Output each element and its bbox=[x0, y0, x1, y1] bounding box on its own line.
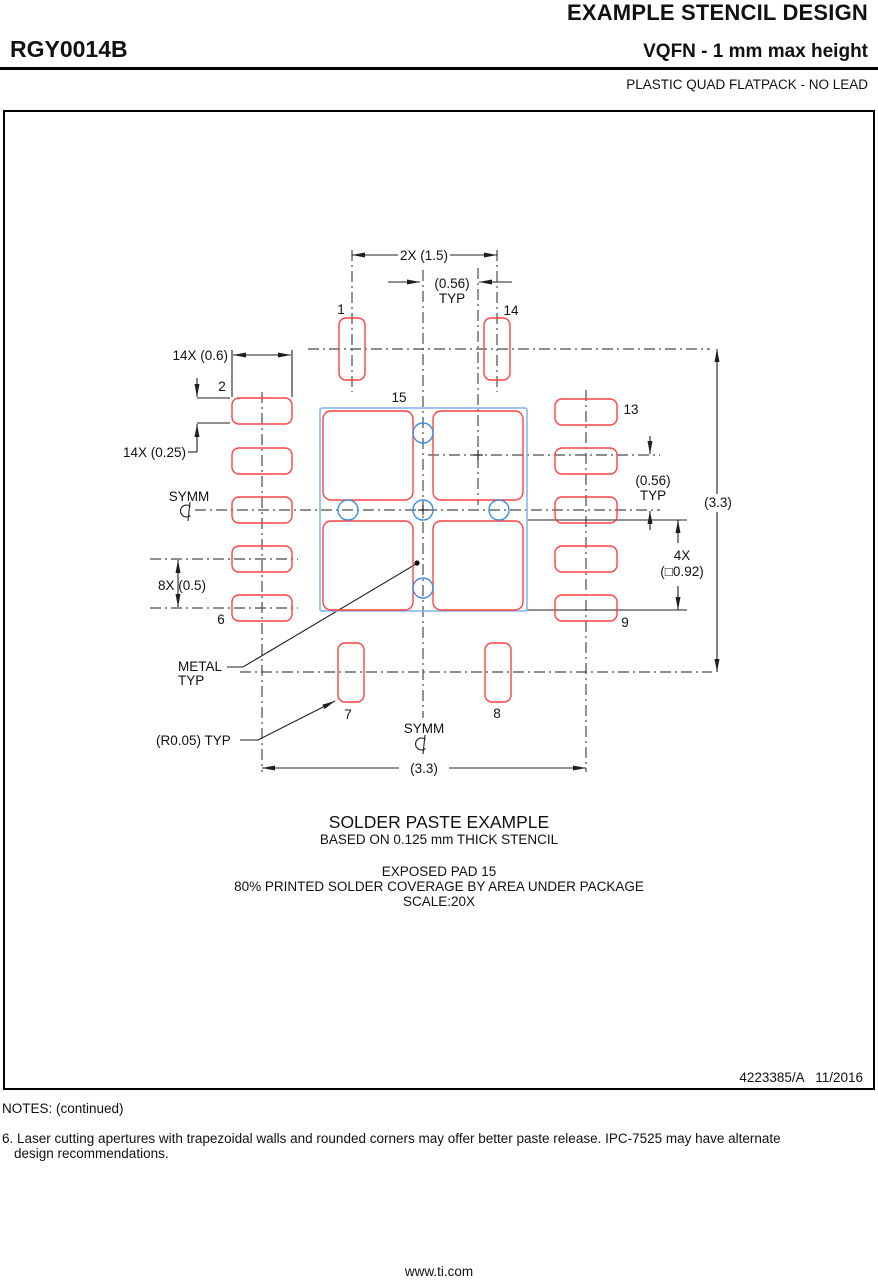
exposed-pad-segment bbox=[323, 411, 413, 500]
pin-label-14: 14 bbox=[503, 303, 519, 318]
dim-via-size: (□0.92) bbox=[660, 564, 703, 579]
dim-body-width: (3.3) bbox=[410, 761, 438, 776]
footer-url: www.ti.com bbox=[0, 1264, 878, 1279]
pin-label-13: 13 bbox=[623, 402, 638, 417]
dim-pitch-top: 2X (1.5) bbox=[400, 248, 448, 263]
radius-leader bbox=[240, 701, 335, 740]
metal-leader bbox=[227, 564, 416, 667]
pin-label-8: 8 bbox=[493, 706, 501, 721]
stencil-drawing: 2X (1.5) (0.56) TYP 14X (0.6) 14X (0.25)… bbox=[3, 110, 875, 1086]
metal-label: METAL bbox=[178, 659, 222, 674]
note-6-line1: 6. Laser cutting apertures with trapezoi… bbox=[2, 1131, 781, 1146]
centerline-symbol bbox=[181, 502, 191, 521]
pin-label-2: 2 bbox=[218, 379, 226, 394]
dim-side-pitch: 8X (0.5) bbox=[158, 578, 206, 593]
datasheet-page: { "header": { "doc_title": "EXAMPLE STEN… bbox=[0, 0, 878, 1288]
radius-label: (R0.05) TYP bbox=[156, 733, 231, 748]
dim-clearance-right-typ: TYP bbox=[640, 488, 666, 503]
dim-via-count: 4X bbox=[674, 548, 691, 563]
symm-label-left: SYMM bbox=[169, 489, 210, 504]
pin-label-6: 6 bbox=[217, 612, 225, 627]
metal-label-typ: TYP bbox=[178, 673, 204, 688]
drawing-text: 2X (1.5) (0.56) TYP 14X (0.6) 14X (0.25)… bbox=[123, 248, 732, 776]
dim-pad-length: 14X (0.6) bbox=[172, 348, 228, 363]
pin-label-7: 7 bbox=[344, 707, 352, 722]
dim-body-height: (3.3) bbox=[704, 495, 732, 510]
dimension-lines bbox=[178, 255, 717, 768]
package-description: PLASTIC QUAD FLATPACK - NO LEAD bbox=[626, 77, 868, 92]
metal-leader-dot bbox=[414, 560, 419, 565]
pin-label-15: 15 bbox=[391, 390, 406, 405]
dim-clearance-top: (0.56) bbox=[434, 276, 469, 291]
page-title: EXAMPLE STENCIL DESIGN bbox=[567, 0, 868, 26]
symm-label-bottom: SYMM bbox=[404, 721, 445, 736]
dim-clearance-right: (0.56) bbox=[635, 473, 670, 488]
exposed-pad-segment bbox=[433, 521, 523, 610]
notes-heading: NOTES: (continued) bbox=[2, 1101, 124, 1116]
pin-label-9: 9 bbox=[621, 615, 629, 630]
note-6-line2: design recommendations. bbox=[14, 1146, 169, 1161]
dim-pad-width: 14X (0.25) bbox=[123, 445, 186, 460]
center-marks bbox=[418, 450, 483, 515]
centerline-symbol bbox=[416, 735, 426, 754]
part-number: RGY0014B bbox=[10, 36, 128, 63]
pin-label-1: 1 bbox=[337, 302, 345, 317]
centerlines bbox=[150, 250, 712, 772]
dim-clearance-top-typ: TYP bbox=[439, 291, 465, 306]
package-type: VQFN - 1 mm max height bbox=[643, 41, 868, 63]
header-rule bbox=[0, 67, 878, 70]
exposed-pad-segment bbox=[323, 521, 413, 610]
